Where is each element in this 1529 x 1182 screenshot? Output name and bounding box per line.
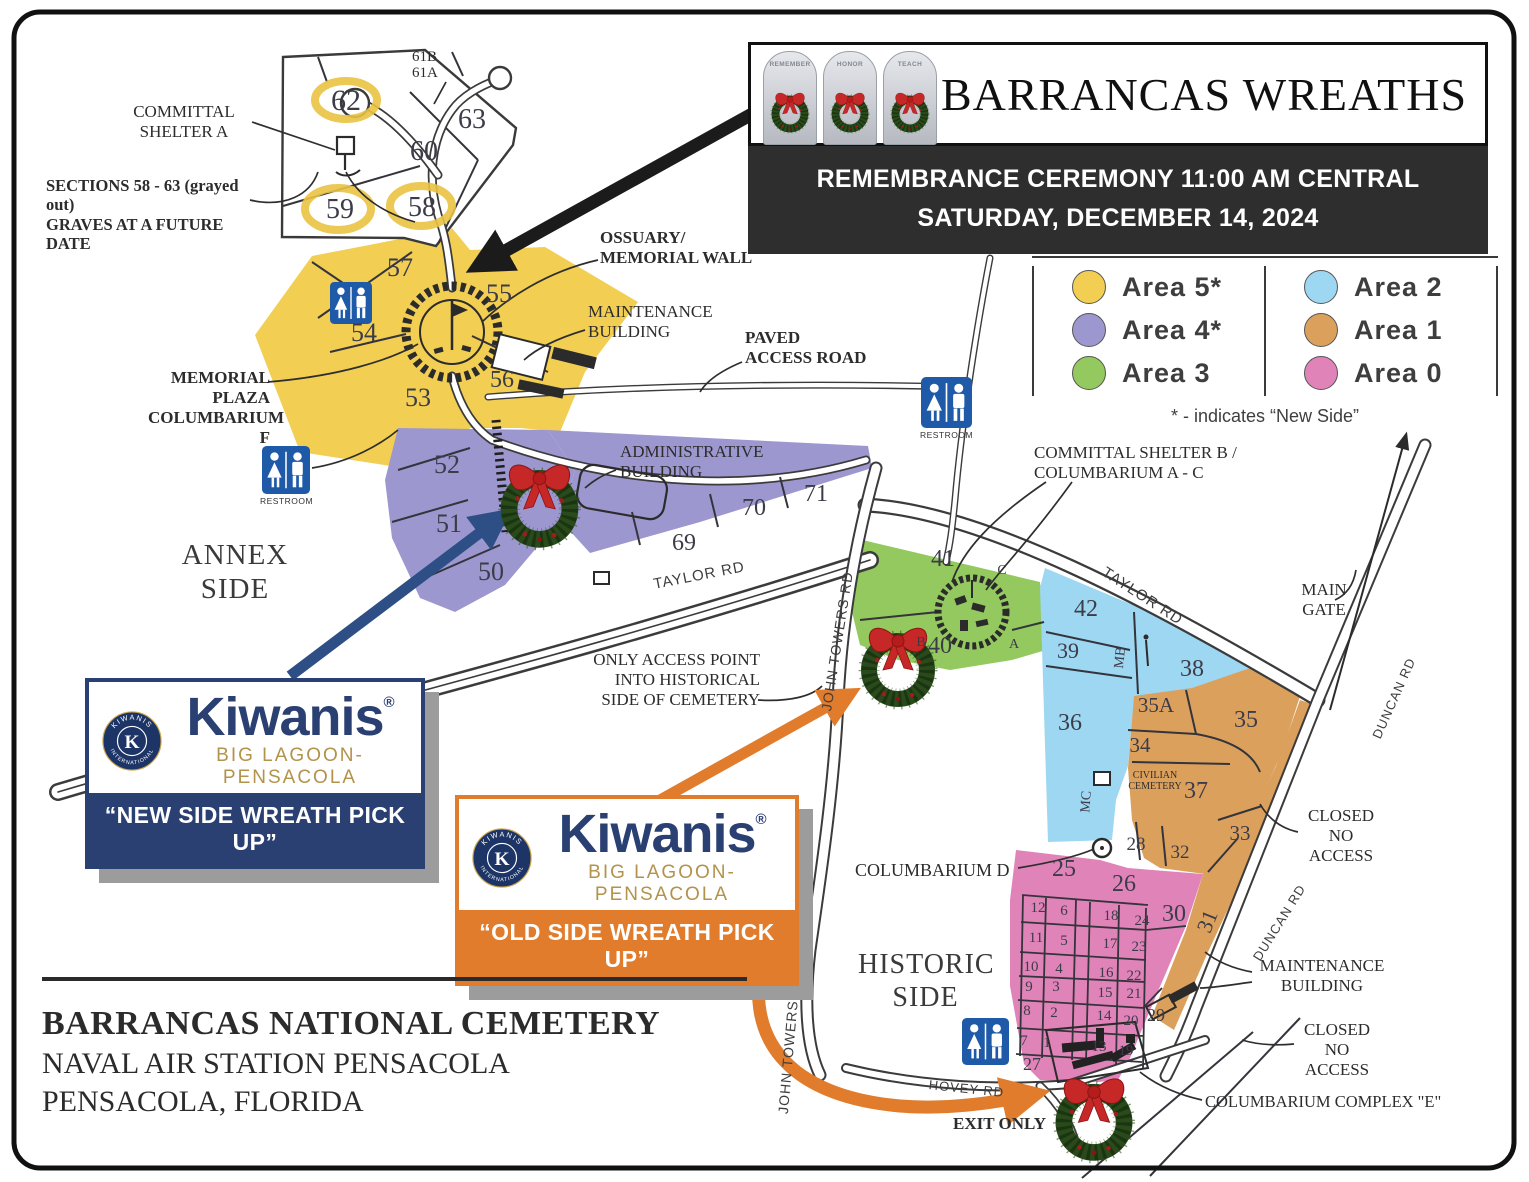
headstone: HONOR xyxy=(823,51,877,145)
section-4: 4 xyxy=(1055,961,1063,977)
section-21: 21 xyxy=(1127,986,1142,1002)
legend-label: Area 2 xyxy=(1354,272,1443,303)
header-banner: REMEMBER HONOR TEACH BARRANCAS WREATHS R… xyxy=(748,42,1488,254)
section-52: 52 xyxy=(434,450,460,479)
seal-k: K xyxy=(124,731,139,752)
legend-label: Area 4* xyxy=(1122,315,1222,346)
mc-building xyxy=(1094,772,1110,785)
registered-mark: ® xyxy=(384,694,394,711)
section-71: 71 xyxy=(804,481,828,507)
kiwanis-new-side-box: KIWANIS INTERNATIONAL K Kiwanis® BIG LAG… xyxy=(85,678,425,869)
cemetery-location-2: PENSACOLA, FLORIDA xyxy=(42,1085,747,1119)
section-59: 59 xyxy=(326,194,354,225)
section-17: 17 xyxy=(1103,936,1119,952)
cemetery-name: BARRANCAS NATIONAL CEMETERY xyxy=(42,1005,747,1043)
section-42: 42 xyxy=(1074,596,1098,622)
columbarium-d-circle xyxy=(1093,839,1111,857)
section-14: 14 xyxy=(1097,1008,1113,1024)
legend-label: Area 0 xyxy=(1354,358,1443,389)
section-23: 23 xyxy=(1132,939,1147,955)
page-title: BARRANCAS WREATHS xyxy=(937,68,1471,121)
registered-mark: ® xyxy=(756,811,766,828)
legend-footnote: * - indicates “New Side” xyxy=(1032,406,1498,427)
old-side-pickup-band: “OLD SIDE WREATH PICK UP” xyxy=(459,910,795,982)
john-towers-rd-label-1: JOHN TOWERS RD xyxy=(818,570,856,712)
section-38: 38 xyxy=(1180,656,1204,682)
section-8: 8 xyxy=(1023,1003,1031,1019)
duncan-rd-label-2: DUNCAN RD xyxy=(1250,882,1309,964)
section-53: 53 xyxy=(405,383,431,412)
legend-divider xyxy=(1032,256,1498,258)
wreath-icon xyxy=(885,82,935,138)
section-9: 9 xyxy=(1025,979,1033,995)
kiwanis-seal-icon: KIWANIS INTERNATIONAL K xyxy=(471,827,533,889)
mc-label: MC xyxy=(1078,790,1094,813)
section-12: 12 xyxy=(1031,900,1046,916)
headstone-text: REMEMBER xyxy=(764,61,816,68)
ceremony-banner-line2: SATURDAY, DECEMBER 14, 2024 xyxy=(748,199,1488,238)
section-56: 56 xyxy=(490,367,514,393)
section-39: 39 xyxy=(1057,638,1079,663)
legend-divider xyxy=(1496,266,1498,396)
section-24: 24 xyxy=(1135,913,1151,929)
headstone: REMEMBER xyxy=(763,51,817,145)
section-2: 2 xyxy=(1050,1005,1058,1021)
header-to-plaza-arrow xyxy=(478,104,770,266)
section-3: 3 xyxy=(1052,979,1060,995)
section-50: 50 xyxy=(478,557,504,586)
section-5: 5 xyxy=(1060,933,1068,949)
section-58: 58 xyxy=(408,192,436,223)
seal-k: K xyxy=(494,848,509,869)
section-35: 35 xyxy=(1234,707,1258,733)
headstone: TEACH xyxy=(883,51,937,145)
title-rule xyxy=(42,977,747,981)
wreath-icon xyxy=(765,82,815,138)
columbarium-a-letter: A xyxy=(1009,637,1020,652)
area-5-swatch xyxy=(1072,270,1106,304)
section-34: 34 xyxy=(1130,733,1152,757)
section-13: 13 xyxy=(1092,1039,1107,1055)
new-side-pickup-band: “NEW SIDE WREATH PICK UP” xyxy=(89,793,421,865)
section-16: 16 xyxy=(1099,965,1115,981)
section-1: 1 xyxy=(1043,1035,1051,1051)
section-10: 10 xyxy=(1024,959,1039,975)
section-19: 19 xyxy=(1119,1043,1134,1059)
section-29: 29 xyxy=(1147,1005,1165,1025)
legend-item: Area 3 xyxy=(1072,356,1264,390)
section-62: 62 xyxy=(331,84,361,117)
section-40: 40 xyxy=(928,633,952,659)
section-27: 27 xyxy=(1023,1054,1041,1074)
legend-label: Area 1 xyxy=(1354,315,1443,346)
section-63: 63 xyxy=(458,104,486,135)
section-20: 20 xyxy=(1124,1013,1139,1029)
legend-item: Area 0 xyxy=(1304,356,1496,390)
restroom-sign-icon xyxy=(262,446,310,494)
headstone-text: TEACH xyxy=(884,61,936,68)
kiwanis-seal-icon: KIWANIS INTERNATIONAL K xyxy=(101,710,163,772)
area-1-swatch xyxy=(1304,313,1338,347)
kiwanis-club-name: BIG LAGOON-PENSACOLA xyxy=(543,862,781,906)
columbarium-b-letter: B xyxy=(916,635,925,650)
area-4-swatch xyxy=(1072,313,1106,347)
taylor-rd-label-new: TAYLOR RD xyxy=(652,558,746,592)
legend-label: Area 3 xyxy=(1122,358,1211,389)
section-57: 57 xyxy=(387,253,413,282)
section-26: 26 xyxy=(1112,871,1136,897)
section-51: 51 xyxy=(436,509,462,538)
area-0-swatch xyxy=(1304,356,1338,390)
ceremony-banner-line1: REMEMBRANCE CEREMONY 11:00 AM CENTRAL xyxy=(748,160,1488,199)
area-2-swatch xyxy=(1304,270,1338,304)
section-25: 25 xyxy=(1052,856,1076,882)
section-60: 60 xyxy=(410,136,438,167)
columbarium-c-letter: C xyxy=(997,563,1006,578)
section-36: 36 xyxy=(1058,710,1082,736)
section-69: 69 xyxy=(672,530,696,556)
legend-item: Area 1 xyxy=(1304,313,1496,347)
duncan-rd-label-1: DUNCAN RD xyxy=(1369,655,1418,741)
section-11: 11 xyxy=(1029,930,1043,946)
section-70: 70 xyxy=(742,495,766,521)
kiwanis-old-side-box: KIWANIS INTERNATIONAL K Kiwanis® BIG LAG… xyxy=(455,795,799,986)
wreath-exit-icon xyxy=(1064,1079,1124,1155)
restroom-sign-icon xyxy=(962,1018,1009,1065)
section-6: 6 xyxy=(1060,903,1068,919)
headstones: REMEMBER HONOR TEACH xyxy=(763,51,937,145)
header-title-row: REMEMBER HONOR TEACH BARRANCAS WREATHS xyxy=(748,42,1488,146)
legend-item: Area 2 xyxy=(1304,270,1496,304)
cemetery-location-1: NAVAL AIR STATION PENSACOLA xyxy=(42,1047,747,1081)
wreath-icon xyxy=(825,82,875,138)
map-title-block: BARRANCAS NATIONAL CEMETERY NAVAL AIR ST… xyxy=(42,977,747,1119)
headstone-text: HONOR xyxy=(824,61,876,68)
legend-column-2: Area 2 Area 1 Area 0 xyxy=(1266,266,1496,396)
legend-item: Area 5* xyxy=(1072,270,1264,304)
section-32: 32 xyxy=(1171,842,1190,863)
area-legend: Area 5* Area 4* Area 3 Area 2 Area 1 Are… xyxy=(1032,256,1498,427)
legend-label: Area 5* xyxy=(1122,272,1222,303)
restroom-sign-icon xyxy=(921,377,972,428)
hovey-rd-label: HOVEY RD xyxy=(928,1077,1005,1100)
section-55: 55 xyxy=(486,279,512,308)
kiwanis-wordmark: Kiwanis xyxy=(186,687,383,747)
section-7: 7 xyxy=(1020,1033,1028,1049)
section-35a: 35A xyxy=(1138,693,1175,717)
memorial-plaza-circle xyxy=(406,286,498,378)
kiwanis-wordmark: Kiwanis xyxy=(558,804,755,864)
section-30: 30 xyxy=(1162,901,1186,927)
section-54: 54 xyxy=(351,318,377,347)
section-22: 22 xyxy=(1127,968,1142,984)
small-building xyxy=(594,572,609,584)
mb-label: MB xyxy=(1112,646,1129,669)
section-37: 37 xyxy=(1184,778,1208,804)
section-41: 41 xyxy=(931,546,955,572)
legend-item: Area 4* xyxy=(1072,313,1264,347)
section-28: 28 xyxy=(1127,834,1146,855)
area-3-swatch xyxy=(1072,356,1106,390)
section-33: 33 xyxy=(1230,821,1251,845)
section-18: 18 xyxy=(1104,908,1119,924)
ceremony-banner: REMEMBRANCE CEREMONY 11:00 AM CENTRAL SA… xyxy=(748,146,1488,254)
kiwanis-club-name: BIG LAGOON-PENSACOLA xyxy=(173,745,407,789)
cemetery-wreath-map-flyer: 62 63 60 59 58 57 55 54 53 56 52 51 50 6… xyxy=(0,0,1529,1182)
section-15: 15 xyxy=(1098,985,1113,1001)
legend-column-1: Area 5* Area 4* Area 3 xyxy=(1034,266,1264,396)
